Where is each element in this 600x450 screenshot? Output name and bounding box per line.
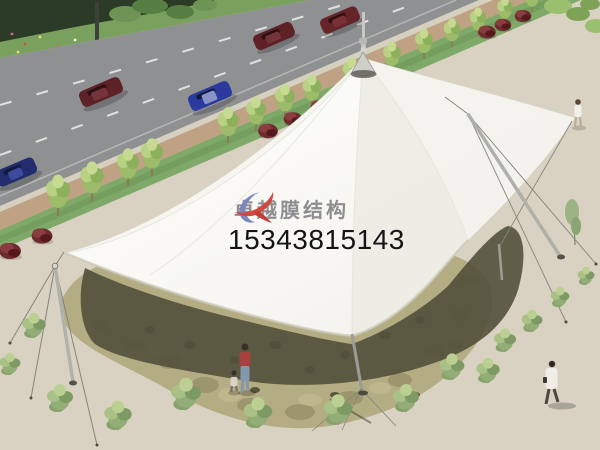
rendering-canvas: 卓越膜结构 15343815143 (0, 0, 600, 450)
scene-svg (0, 0, 600, 450)
